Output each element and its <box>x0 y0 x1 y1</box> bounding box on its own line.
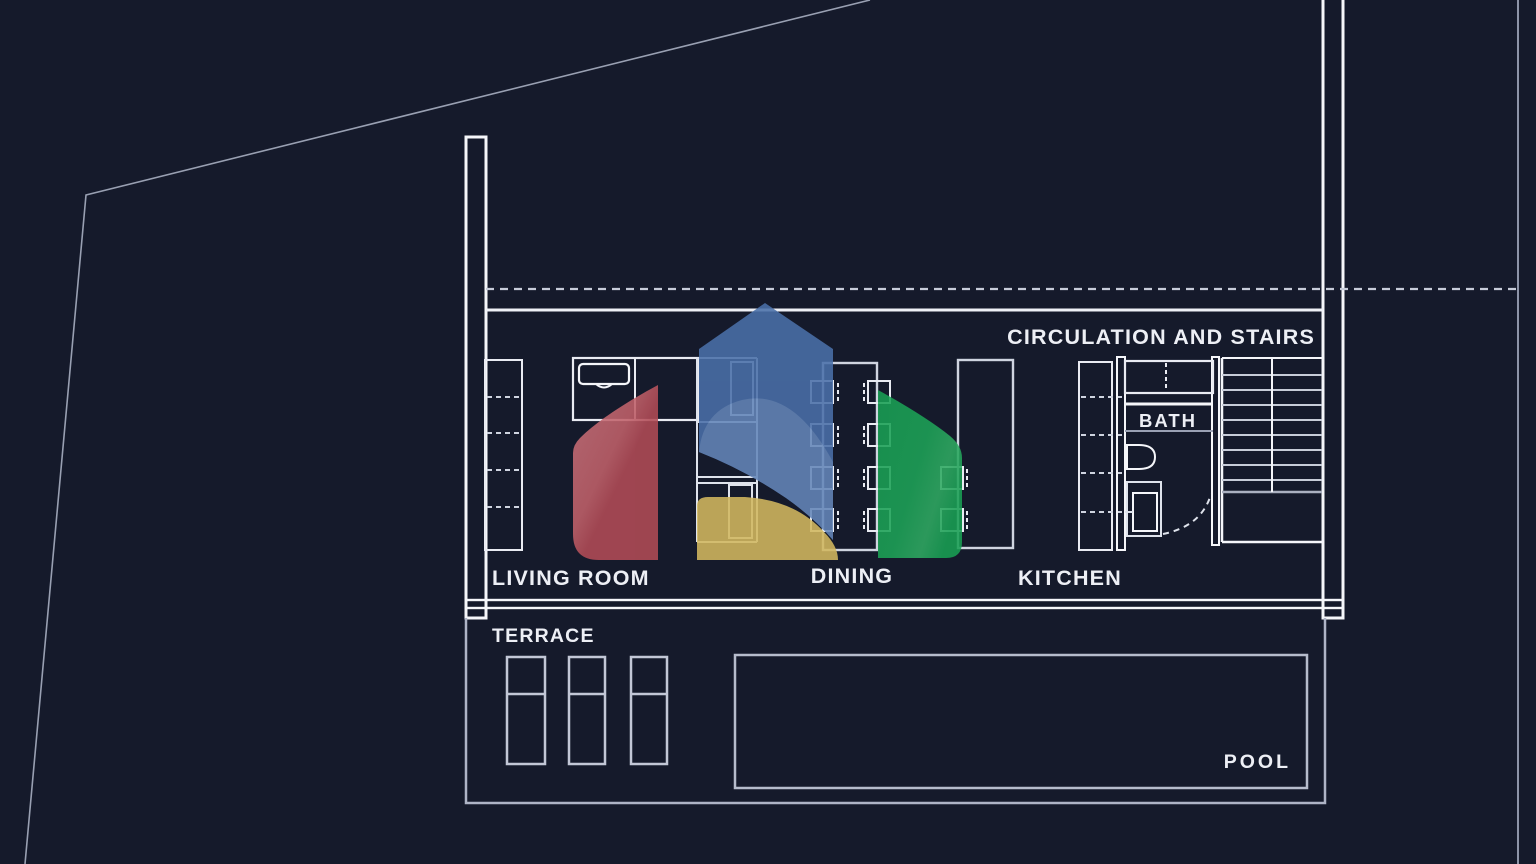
label-terrace: TERRACE <box>492 625 595 647</box>
counter-shelf-lines <box>1081 397 1122 512</box>
pool-outline <box>735 655 1307 788</box>
terrace-outline <box>466 618 1325 803</box>
label-pool: POOL <box>1224 751 1291 773</box>
left-wall <box>466 137 486 618</box>
sink <box>1127 445 1155 469</box>
kitchen-counter <box>1079 362 1112 550</box>
bath-left-wall <box>1117 357 1125 550</box>
sun-loungers <box>507 657 667 764</box>
label-dining: DINING <box>811 564 893 588</box>
logo-leaf-green <box>878 390 962 558</box>
bath-block <box>1117 357 1219 550</box>
wardrobe-shelf-lines <box>487 397 520 507</box>
label-kitchen: KITCHEN <box>1018 566 1122 590</box>
sofa <box>579 364 629 384</box>
label-living-room: LIVING ROOM <box>492 566 650 590</box>
sun-lounger <box>631 657 667 764</box>
sun-lounger <box>507 657 545 764</box>
logo-watermark <box>573 303 962 560</box>
floor-plan-canvas: CIRCULATION AND STAIRS LIVING ROOM DININ… <box>0 0 1536 864</box>
label-bath: BATH <box>1139 410 1197 431</box>
label-circulation: CIRCULATION AND STAIRS <box>1007 325 1315 349</box>
right-wall <box>1323 0 1343 618</box>
bath-closet <box>1125 361 1213 393</box>
staircase <box>1222 358 1322 542</box>
wardrobe <box>485 360 522 550</box>
floor-plan: CIRCULATION AND STAIRS LIVING ROOM DININ… <box>0 0 1536 864</box>
sun-lounger <box>569 657 605 764</box>
door-swing-arc <box>1163 494 1211 534</box>
kitchen-area <box>941 360 1122 550</box>
logo-sail-red <box>573 385 658 560</box>
bottom-wall <box>466 600 1343 608</box>
toilet <box>1133 493 1157 531</box>
chair-tuck-lines <box>838 383 864 529</box>
